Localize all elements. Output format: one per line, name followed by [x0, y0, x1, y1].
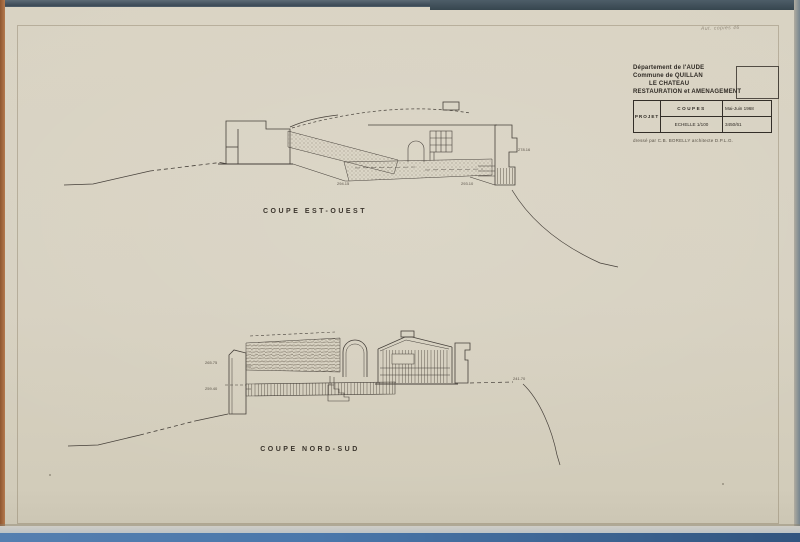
floor-hatch-band	[225, 382, 395, 396]
elevation-label: 293.10	[461, 181, 474, 186]
floor-slab	[344, 159, 492, 181]
scan-edge-left	[0, 0, 5, 542]
terrace-edge	[293, 164, 349, 181]
arch-niche	[408, 141, 424, 162]
round-tower	[375, 331, 458, 384]
elevation-label: 265.75	[205, 360, 218, 365]
terrain-line-right	[470, 382, 560, 465]
tower-roof	[378, 331, 452, 351]
cell-scale: ECHELLE 1/100	[661, 117, 723, 133]
dome-roof-line	[290, 102, 470, 128]
lower-section-drawing: 265.75 259.40 241.70	[55, 328, 575, 478]
scan-edge-bottom-blue	[0, 533, 800, 542]
terrain-line-left	[64, 163, 228, 186]
elevation-label: 294.15	[337, 181, 350, 186]
title-table: PROJET COUPES Mai-Juin 1968 ECHELLE 1/10…	[633, 100, 772, 133]
paper-speck	[49, 474, 51, 476]
architect-credit-line: dressé par C.B. BORELLY architecte D.P.L…	[633, 138, 768, 143]
elevation-label: 259.40	[205, 386, 218, 391]
cell-number: 3450/61	[723, 117, 771, 133]
window-detail	[430, 131, 452, 160]
cell-project: PROJET	[634, 101, 661, 132]
scan-edge-bottom-light	[0, 526, 800, 533]
scan-edge-top-right	[430, 0, 800, 10]
stamp-box	[736, 66, 779, 99]
scan-edge-right	[794, 0, 800, 542]
tower-opening	[392, 354, 414, 364]
tower-outline	[218, 121, 293, 164]
parapet-wall	[478, 125, 517, 185]
slab-step	[470, 177, 495, 185]
scanned-drawing-sheet: Aut. copies 46	[0, 0, 800, 542]
terrain-line-left	[68, 414, 228, 446]
elevation-label: 278.16	[518, 147, 531, 152]
roof-finial	[443, 102, 459, 110]
cell-date: Mai-Juin 1968	[723, 101, 771, 117]
elevation-label: 241.70	[513, 376, 526, 381]
caption-coupe-est-ouest: COUPE EST-OUEST	[250, 208, 380, 215]
cell-drawing-type: COUPES	[661, 101, 723, 117]
cliff-line	[512, 190, 618, 267]
chimney	[401, 331, 414, 337]
caption-coupe-nord-sud: COUPE NORD-SUD	[245, 446, 375, 453]
arched-doorway	[343, 340, 367, 377]
vault-masonry	[246, 332, 340, 372]
right-wall-block	[455, 343, 470, 383]
upper-section-drawing: 294.15 293.10 278.16	[55, 98, 640, 283]
paper-speck	[722, 483, 724, 485]
